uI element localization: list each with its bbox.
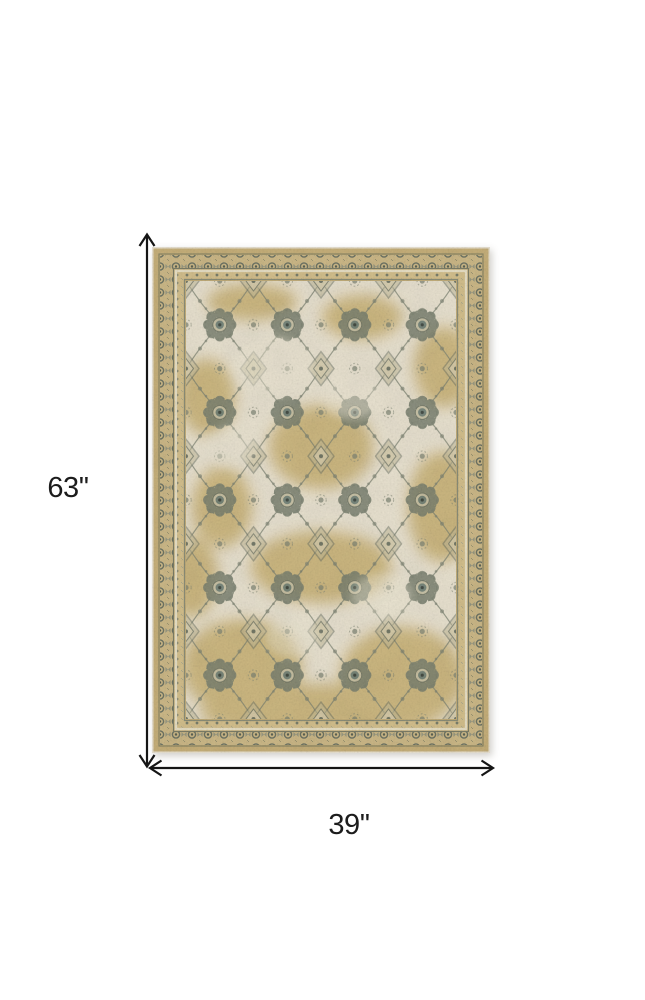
rug-image [152,247,490,753]
width-dimension-line [150,761,493,776]
up-arrow-icon [140,235,155,247]
down-arrow-icon [140,755,155,767]
left-arrow-icon [150,761,162,776]
right-arrow-icon [482,761,494,776]
rug-artwork [152,247,490,753]
width-dimension-label: 39'' [319,809,379,842]
product-image-canvas: 63'' 39'' [0,0,645,1000]
height-dimension-label: 63'' [38,472,98,505]
rug-tone-texture [152,247,490,753]
